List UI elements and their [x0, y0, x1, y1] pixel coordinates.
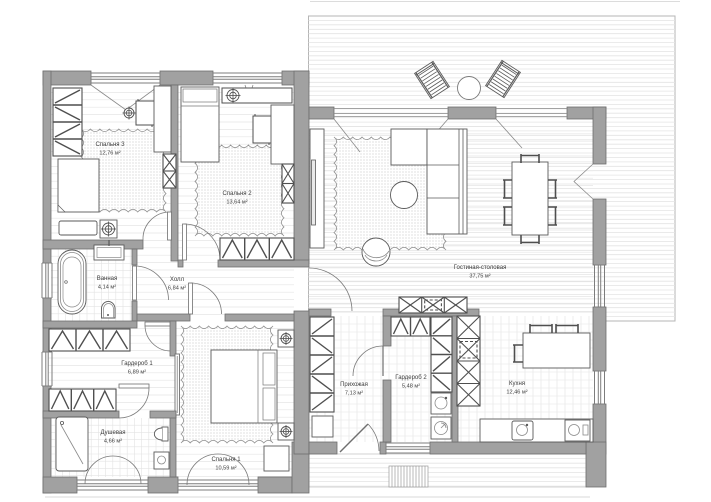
svg-text:7,13 м²: 7,13 м²: [345, 391, 363, 397]
svg-text:Душевая: Душевая: [100, 430, 125, 436]
svg-text:Спальня 3: Спальня 3: [95, 142, 125, 148]
svg-text:Холл: Холл: [170, 277, 185, 283]
svg-text:Кухня: Кухня: [509, 381, 525, 387]
svg-text:12,76 м²: 12,76 м²: [99, 151, 120, 157]
svg-text:Ванная: Ванная: [97, 276, 118, 282]
svg-text:4,66 м²: 4,66 м²: [104, 439, 122, 445]
svg-text:Гостиная-столовая: Гостиная-столовая: [454, 265, 507, 271]
svg-text:6,84 м²: 6,84 м²: [168, 286, 186, 292]
svg-text:12,46 м²: 12,46 м²: [506, 390, 527, 396]
svg-text:Спальня 2: Спальня 2: [222, 191, 252, 197]
svg-text:4,14 м²: 4,14 м²: [98, 285, 116, 291]
svg-text:Гардероб 2: Гардероб 2: [395, 375, 427, 381]
svg-text:Спальня 1: Спальня 1: [211, 457, 241, 463]
svg-text:13,64 м²: 13,64 м²: [226, 200, 247, 206]
svg-text:6,89 м²: 6,89 м²: [128, 370, 146, 376]
svg-text:Прихожая: Прихожая: [340, 382, 368, 388]
svg-text:5,48 м²: 5,48 м²: [402, 384, 420, 390]
svg-text:10,59 м²: 10,59 м²: [215, 466, 236, 472]
svg-text:37,75 м²: 37,75 м²: [469, 274, 490, 280]
svg-text:Гардероб 1: Гардероб 1: [121, 361, 153, 367]
